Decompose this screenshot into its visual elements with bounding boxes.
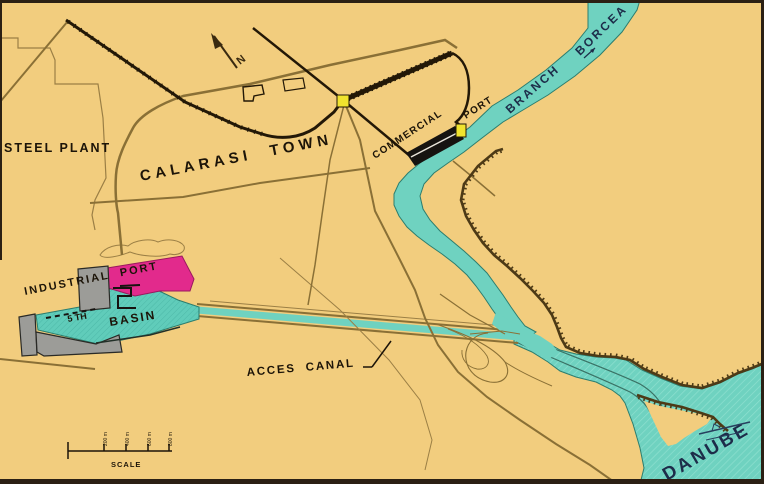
svg-text:SCALE: SCALE <box>111 460 141 469</box>
svg-text:400 m: 400 m <box>125 432 131 446</box>
svg-text:STEEL PLANT: STEEL PLANT <box>4 141 111 155</box>
svg-text:200 m: 200 m <box>103 432 109 446</box>
svg-text:600 m: 600 m <box>147 432 153 446</box>
svg-text:800 m: 800 m <box>168 432 174 446</box>
